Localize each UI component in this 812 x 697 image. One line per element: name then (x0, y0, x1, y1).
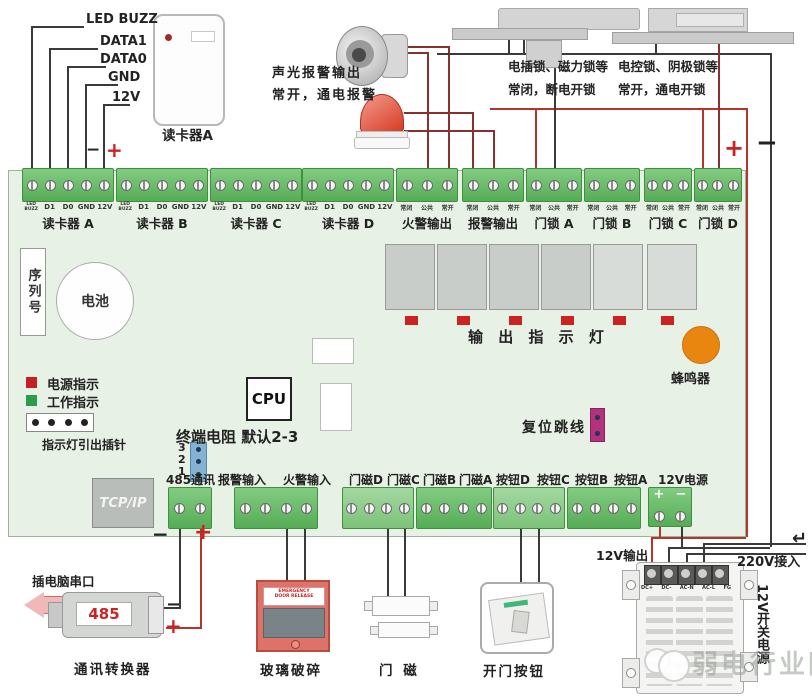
terminal-block-doormag-dc (342, 487, 414, 529)
wire (508, 40, 510, 53)
pin-dot (595, 415, 600, 420)
terminal-strip (396, 168, 458, 202)
plus-sign: + (165, 616, 182, 636)
minus-sign: − (756, 130, 778, 156)
wire (746, 108, 748, 537)
terminal-pin (589, 180, 600, 191)
wire (703, 543, 806, 545)
reset-jumper (590, 408, 605, 442)
converter-label-plate: 485 (76, 602, 132, 626)
output-led-icon (613, 316, 626, 325)
wire (668, 547, 770, 549)
terminal-pin (572, 503, 583, 514)
terminal-pin (532, 503, 543, 514)
psu-in-label: 220V接入 (737, 551, 800, 570)
bottom-label-doormag-b: 门磁B (423, 471, 456, 488)
serial-port-label: 插电脑串口 (32, 571, 95, 590)
lock-note1-line2: 常闭，断电开锁 (508, 79, 596, 98)
alarm-note-line2: 常开，通电报警 (272, 84, 377, 103)
wire (404, 112, 472, 114)
watermark-text: 弱电行业网 (692, 644, 812, 681)
terminal-pin (307, 180, 318, 191)
terminal-strip (302, 168, 394, 202)
terminal-pin (381, 503, 392, 514)
wire (535, 108, 537, 170)
wire (523, 40, 525, 53)
buzzer-label: 蜂鸣器 (671, 368, 710, 387)
wire-label-12v: 12V (112, 90, 140, 105)
plus-sign: + (724, 136, 744, 160)
lock1-body (498, 8, 640, 30)
reset-jumper-label: 复位跳线 (522, 417, 586, 437)
output-led-caption: 输 出 指 示 灯 (468, 326, 609, 347)
terminal-pin (121, 180, 132, 191)
lock-note2-line2: 常开，通电开锁 (618, 79, 706, 98)
terminal-pin (361, 180, 372, 191)
terminal-strip (567, 487, 641, 529)
wire (437, 53, 771, 55)
psu-screw-terminal (644, 565, 661, 585)
terminal-pin (508, 180, 519, 191)
terminal-strip (234, 487, 318, 529)
door-contact-bar2 (378, 622, 430, 638)
terminal-pin (608, 503, 619, 514)
battery: 电池 (56, 262, 134, 340)
exit-button-device (480, 582, 554, 654)
pin-labels: LED BUZZD1D0GND12V (210, 203, 302, 212)
terminal-strip (22, 168, 114, 202)
cpu-chip: CPU (246, 377, 292, 421)
terminal-strip (462, 168, 524, 202)
pin-dot (65, 419, 72, 426)
terminal-block-reader-c: LED BUZZD1D0GND12V 读卡器 C (210, 168, 302, 232)
wire (520, 527, 522, 582)
bottom-label-485: 485通讯 (166, 471, 215, 488)
terminal-caption: 读卡器 C (210, 213, 302, 232)
terminal-pin (515, 503, 526, 514)
relay-block (489, 244, 539, 310)
terminal-strip (416, 487, 492, 529)
terminal-pin (301, 503, 312, 514)
wire (103, 104, 105, 170)
wire (404, 130, 493, 132)
terminal-pin (233, 180, 244, 191)
bottom-label-doormag-a: 门磁A (459, 471, 492, 488)
door-contact-tab (429, 626, 438, 635)
terminal-pin (422, 180, 433, 191)
converter-terminal (148, 596, 164, 634)
minus-sign: − (152, 524, 169, 544)
output-led-icon (457, 316, 470, 325)
wire (49, 48, 51, 170)
terminal-pin (251, 180, 262, 191)
terminal-pin (675, 511, 686, 522)
bottom-label-fire-in: 火警输入 (283, 471, 331, 488)
terminal-pin (379, 180, 390, 191)
terminal-block-reader-b: LED BUZZD1D0GND12V 读卡器 B (116, 168, 208, 232)
terminal-pin (195, 503, 206, 514)
reader-display (191, 31, 215, 42)
wire (448, 46, 450, 170)
pin-labels: 常闭公共常开 (644, 203, 692, 212)
psu-screw-terminal (712, 565, 729, 585)
door-contact-caption: 门 磁 (379, 659, 420, 679)
bottom-label-button-a: 按钮A (614, 471, 647, 488)
terminal-strip (116, 168, 208, 202)
bottom-label-doormag-d: 门磁D (349, 471, 383, 488)
power-indicator-label: 电源指示 (47, 374, 99, 393)
terminal-block-doormag-ba (416, 487, 492, 529)
psu-screw-terminal (678, 565, 695, 585)
terminal-caption: 火警输出 (396, 213, 458, 232)
pin-labels: LED BUZZD1D0GND12V (302, 203, 394, 212)
terminal-caption: 门锁 B (584, 213, 640, 232)
terminal-pin (439, 503, 450, 514)
work-led-icon (26, 395, 37, 406)
terminal-strip (644, 168, 692, 202)
glass-break-button (291, 640, 300, 649)
minus-sign: − (86, 142, 100, 159)
bottom-label-doormag-c: 门磁C (387, 471, 420, 488)
terminal-pin (458, 503, 469, 514)
terminal-block-reader-d: LED BUZZD1D0GND12V 读卡器 D (302, 168, 394, 232)
wire (67, 66, 69, 170)
terminal-pin (240, 503, 251, 514)
terminal-caption: 报警输出 (462, 213, 524, 232)
pin-labels: 常闭公共常开 (526, 203, 582, 212)
terminal-strip (694, 168, 742, 202)
wire (387, 527, 389, 596)
wire (286, 527, 288, 580)
wire (493, 130, 495, 170)
wire (681, 527, 683, 547)
speaker-core (352, 48, 366, 62)
terminal-pin (99, 180, 110, 191)
watermark-logo-icon (658, 650, 690, 682)
psu-out-label: 12V输出 (596, 545, 648, 564)
door-contact-tab (370, 626, 379, 635)
terminal-block-fire-output: 常闭公共常开 火警输出 (396, 168, 458, 232)
wire (404, 527, 406, 596)
door-contact-bar1 (372, 596, 430, 616)
terminal-caption: 读卡器 D (302, 213, 394, 232)
relay-block (437, 244, 487, 310)
terminal-caption: 门锁 A (526, 213, 582, 232)
pin-header-caption: 指示灯引出插针 (42, 436, 126, 453)
wire (49, 48, 98, 50)
terminal-pin (662, 180, 673, 191)
terminal-pin (63, 180, 74, 191)
reader-led-icon (165, 34, 172, 41)
lock1-plate (452, 28, 588, 40)
terminal-strip (493, 487, 565, 529)
terminal-pin (590, 503, 601, 514)
converter-485-label: 485 (88, 605, 119, 623)
terminal-pin (531, 180, 542, 191)
component-box (312, 338, 354, 364)
output-led-icon (661, 316, 674, 325)
terminal-pin (497, 503, 508, 514)
terminal-pin (343, 180, 354, 191)
terminal-pin (626, 503, 637, 514)
wire (655, 44, 657, 53)
terminal-pin (325, 180, 336, 191)
output-led-icon (405, 316, 418, 325)
output-led-icon (561, 316, 574, 325)
plus-sign: + (194, 522, 212, 544)
mount-hole-icon (626, 668, 636, 678)
terminal-block-lock-c: 常闭公共常开 门锁 C (644, 168, 692, 232)
output-led-icon (509, 316, 522, 325)
terminal-pin (281, 503, 292, 514)
glass-break-text2: DOOR RELEASE (264, 595, 324, 600)
wire (490, 108, 748, 110)
power-led-icon (26, 377, 37, 388)
terminal-pin (728, 180, 739, 191)
bottom-label-button-c: 按钮C (537, 471, 570, 488)
buzzer-icon (682, 326, 720, 364)
terminal-pin (364, 503, 375, 514)
terminal-pin (287, 180, 298, 191)
pin-labels: 常闭公共常开 (694, 203, 742, 212)
pin-dot (595, 431, 600, 436)
relay-block (385, 244, 435, 310)
wire (718, 44, 720, 170)
bottom-label-button-b: 按钮B (575, 471, 608, 488)
pin-dot (32, 419, 39, 426)
terminal-pin (550, 503, 561, 514)
terminal-block-button-ba (567, 487, 641, 529)
relay-block (541, 244, 591, 310)
terminal-pin (442, 180, 453, 191)
psu-screw-terminal (661, 565, 678, 585)
terminal-pin (654, 511, 665, 522)
pin-labels: LED BUZZD1D0GND12V (22, 203, 114, 212)
terminal-pin (678, 180, 689, 191)
glass-break-panel (263, 608, 325, 638)
terminal-block-button-dc (493, 487, 565, 529)
terminal-pin (488, 180, 499, 191)
terminal-caption: 门锁 C (644, 213, 692, 232)
relay-block (647, 244, 697, 310)
pin-labels: 常闭公共常开 (462, 203, 524, 212)
minus-sign: − (166, 596, 181, 614)
terminal-pin (139, 180, 150, 191)
terminator-label: 终端电阻 默认2-3 (176, 426, 298, 447)
terminal-strip (526, 168, 582, 202)
return-arrow-icon: ↵ (792, 530, 807, 548)
relay-block (593, 244, 643, 310)
plus-sign: + (106, 140, 123, 160)
terminal-pin (549, 180, 560, 191)
bottom-label-button-d: 按钮D (496, 471, 530, 488)
work-indicator-label: 工作指示 (47, 392, 99, 411)
psu-mount-ear (622, 658, 640, 688)
bottom-label-alarm-in: 报警输入 (218, 471, 266, 488)
wire (472, 112, 474, 170)
wire (31, 26, 84, 28)
terminal-pin (625, 180, 636, 191)
psu-terminal-labels: DC+DC-AC-NAC-LFG (641, 585, 731, 591)
strobe-base (354, 137, 410, 149)
terminal-pin (697, 180, 708, 191)
wire (408, 46, 448, 48)
terminal-pin (712, 180, 723, 191)
wire (31, 26, 33, 170)
terminal-pin (402, 180, 413, 191)
terminal-block-lock-b: 常闭公共常开 门锁 B (584, 168, 640, 232)
wire (427, 52, 429, 170)
terminal-strip (210, 168, 302, 202)
terminal-strip (584, 168, 640, 202)
terminal-pin (567, 180, 578, 191)
terminal-block-lock-d: 常闭公共常开 门锁 D (694, 168, 742, 232)
terminal-pin (215, 180, 226, 191)
terminal-pin (607, 180, 618, 191)
terminal-block-12v-power: +− (648, 487, 692, 527)
component-box (320, 383, 352, 431)
wire (702, 108, 704, 170)
terminal-block-lock-a: 常闭公共常开 门锁 A (526, 168, 582, 232)
door-contact-tab (364, 601, 373, 611)
terminal-pin (193, 180, 204, 191)
wire-label-gnd: GND (108, 70, 140, 85)
lock-note1-line1: 电插锁、磁力锁等 (508, 56, 608, 75)
terminal-pin (468, 180, 479, 191)
exit-button-plate (488, 592, 550, 645)
terminal-strip (342, 487, 414, 529)
bottom-label-12v: 12V电源 (658, 471, 708, 488)
terminal-pin (174, 503, 185, 514)
terminal-pin (647, 180, 658, 191)
converter-caption: 通讯转换器 (74, 658, 152, 678)
mount-hole-icon (626, 580, 636, 590)
wire-label-led-buzz: LED BUZZ (86, 12, 158, 27)
serial-number-label: 序列号 (24, 268, 43, 316)
terminal-pin (346, 503, 357, 514)
terminal-block-alarm-output: 常闭公共常开 报警输出 (462, 168, 524, 232)
cpu-label: CPU (252, 390, 286, 408)
serial-arrow-icon (24, 592, 44, 618)
battery-label: 电池 (81, 291, 109, 311)
wire (304, 527, 306, 580)
psu-mount-ear (622, 570, 640, 600)
terminal-block-alarm-fire-in (234, 487, 318, 529)
terminal-caption: 读卡器 A (22, 213, 114, 232)
exit-button-caption: 开门按钮 (483, 660, 545, 680)
pin-labels: LED BUZZD1D0GND12V (116, 203, 208, 212)
pin-labels: 常闭公共常开 (584, 203, 640, 212)
terminal-pin (399, 503, 410, 514)
terminal-pin (260, 503, 271, 514)
wire-label-data0: DATA0 (100, 52, 147, 67)
wire (651, 537, 746, 539)
wire (538, 527, 540, 582)
terminal-pin (27, 180, 38, 191)
lock2-latch (676, 13, 744, 27)
psu-screw-terminal (695, 565, 712, 585)
exit-button-led (504, 600, 528, 608)
terminal-pin (45, 180, 56, 191)
wire (659, 527, 661, 537)
tcpip-port: TCP/IP (92, 478, 154, 528)
pin-dot (48, 419, 55, 426)
terminal-caption: 读卡器 B (116, 213, 208, 232)
alarm-note-line1: 声光报警输出 (272, 62, 362, 81)
wire-label-data1: DATA1 (100, 34, 147, 49)
serial-number-box: 序列号 (20, 248, 46, 336)
glass-break-caption: 玻璃破碎 (260, 659, 322, 679)
pin-dot (81, 419, 88, 426)
terminal-pin (175, 180, 186, 191)
pin-dot (196, 459, 201, 464)
pin-labels: 常闭公共常开 (396, 203, 458, 212)
lock-note2-line1: 电控锁、阴极锁等 (618, 56, 718, 75)
terminal-block-reader-a: LED BUZZD1D0GND12V 读卡器 A (22, 168, 114, 232)
exit-button-key (511, 610, 530, 634)
terminal-pin (421, 503, 432, 514)
wiring-diagram: LED BUZZ DATA1 DATA0 GND 12V − + 读卡器A 声光… (0, 0, 812, 697)
led-pin-header (26, 413, 94, 432)
lock2-plate (612, 32, 794, 44)
terminal-caption: 门锁 D (694, 213, 742, 232)
door-contact-tab (429, 601, 438, 611)
terminal-pin (81, 180, 92, 191)
glass-break-device: EMERGENCY DOOR RELEASE (256, 580, 330, 652)
terminal-pin (269, 180, 280, 191)
glass-break-plate: EMERGENCY DOOR RELEASE (263, 587, 325, 606)
terminal-pin (157, 180, 168, 191)
tcpip-label: TCP/IP (99, 496, 146, 511)
terminal-pin (476, 503, 487, 514)
pin-dot (196, 447, 201, 452)
12v-polarity: +− (648, 488, 692, 501)
reader-a-caption: 读卡器A (162, 124, 213, 144)
